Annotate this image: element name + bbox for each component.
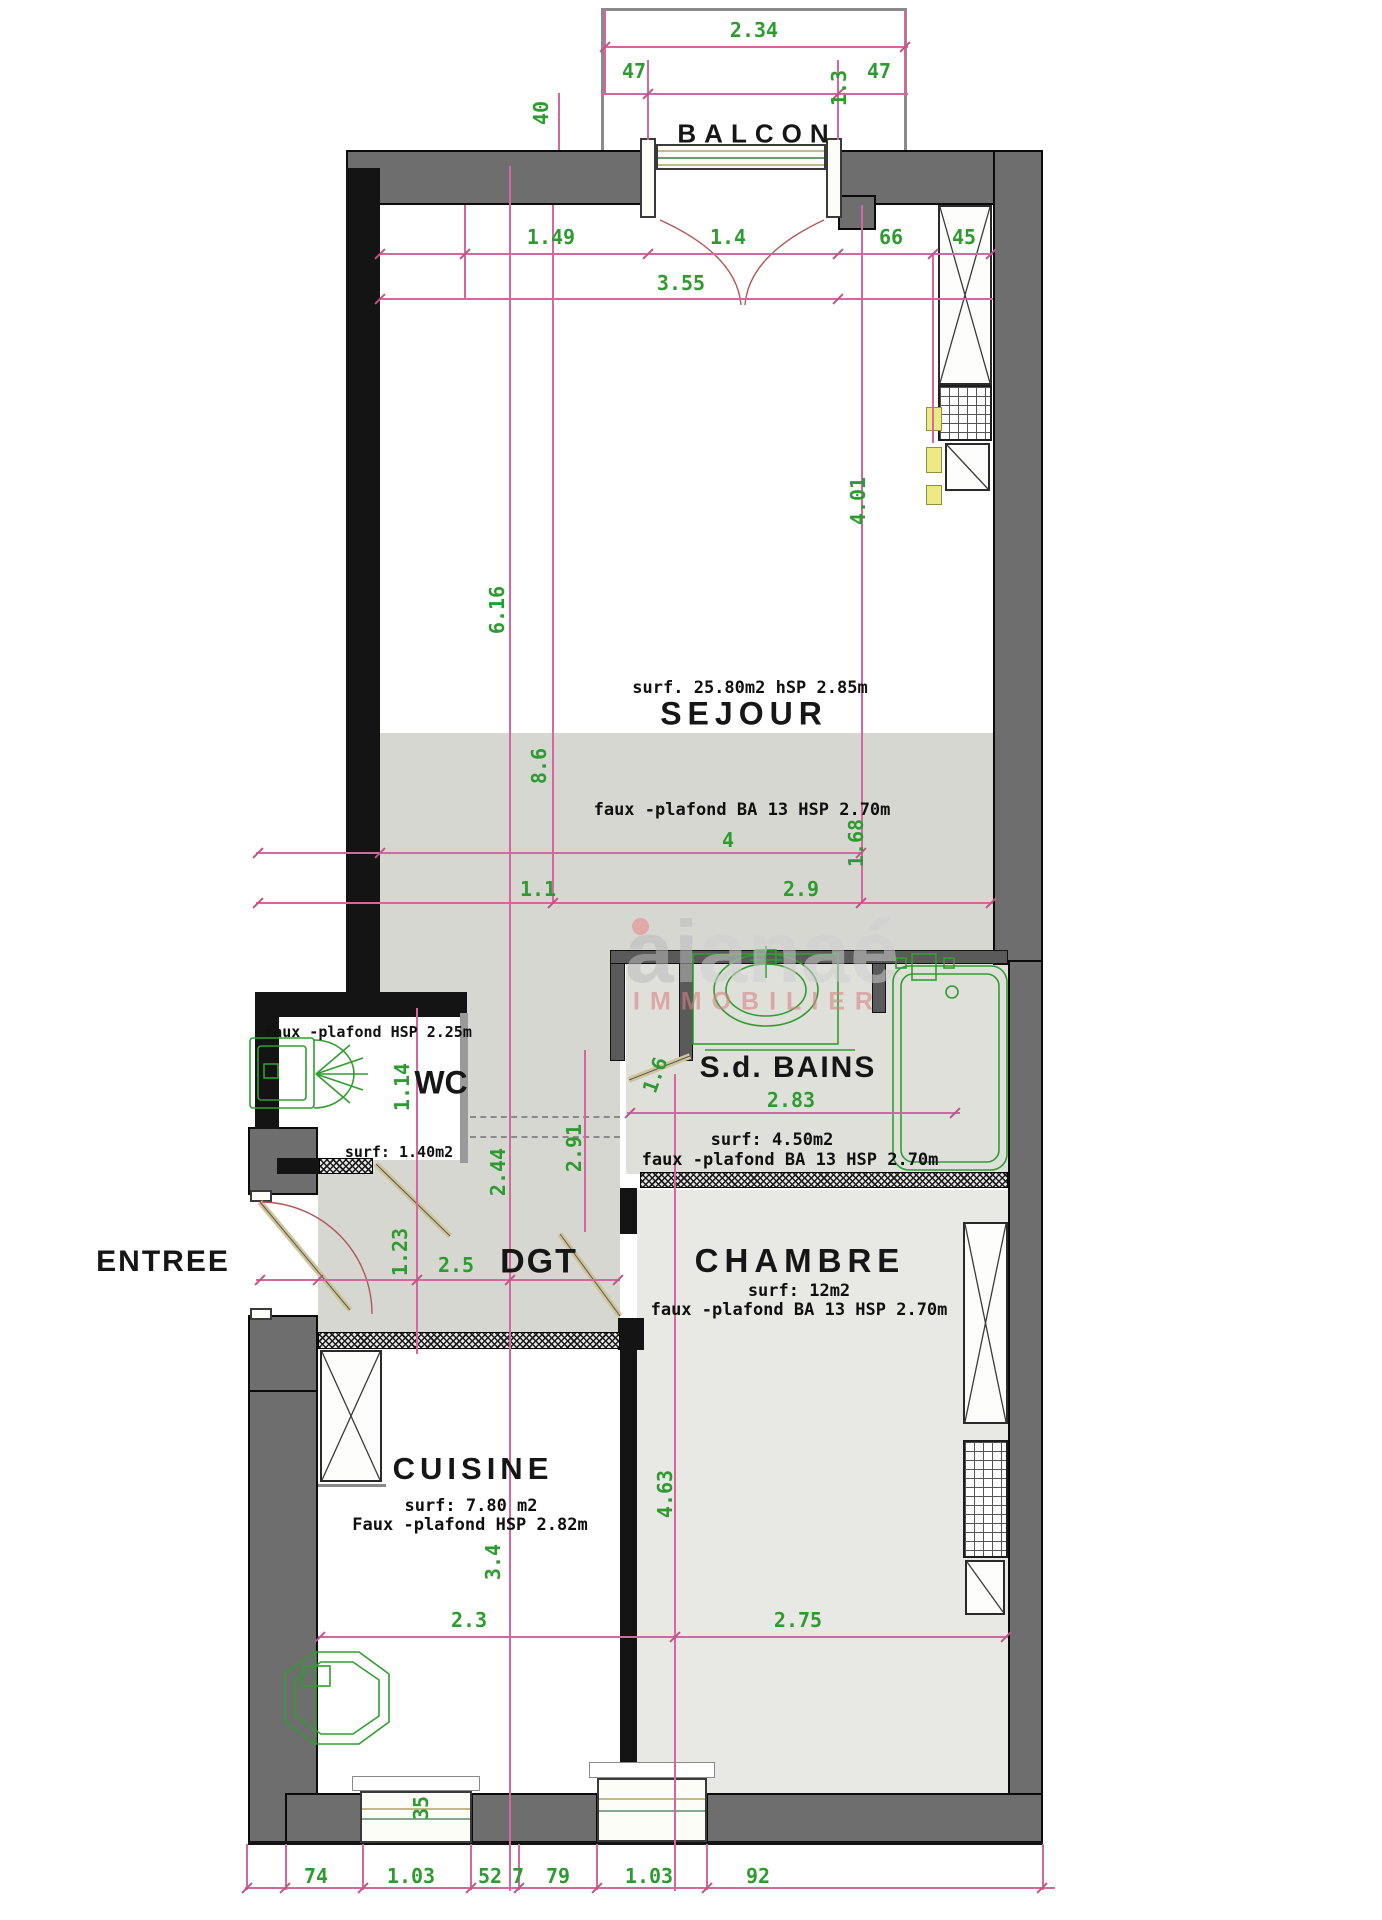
dim-line bbox=[552, 205, 554, 904]
dim-line bbox=[932, 253, 934, 443]
dim-line bbox=[380, 298, 993, 300]
dim-text: 47 bbox=[622, 59, 646, 83]
dim-text: 1.23 bbox=[388, 1228, 412, 1276]
room-label-chambre: CHAMBRE bbox=[695, 1242, 906, 1280]
dim-line bbox=[558, 93, 560, 150]
dim-text: 52 bbox=[478, 1864, 502, 1888]
dim-text: 1.03 bbox=[625, 1864, 673, 1888]
dim-text: 1.14 bbox=[390, 1063, 414, 1111]
dim-text: 92 bbox=[746, 1864, 770, 1888]
dim-line bbox=[706, 1844, 708, 1890]
toilet-icon bbox=[250, 1038, 368, 1108]
dim-text: 2.44 bbox=[486, 1148, 510, 1196]
wc-surface: surf: 1.40m2 bbox=[345, 1143, 453, 1161]
dim-text: 66 bbox=[879, 225, 903, 249]
dim-line bbox=[604, 10, 606, 94]
dim-text: 1.68 bbox=[844, 819, 868, 867]
dim-line bbox=[509, 166, 511, 1891]
dim-text: 45 bbox=[952, 225, 976, 249]
room-label-entree: ENTREE bbox=[96, 1245, 230, 1279]
sdb-surface: surf: 4.50m2 bbox=[711, 1130, 834, 1150]
dim-line bbox=[256, 852, 862, 854]
dim-text: 1.49 bbox=[527, 225, 575, 249]
dim-text: 79 bbox=[546, 1864, 570, 1888]
dim-text: 40 bbox=[529, 101, 553, 125]
bathtub-icon bbox=[893, 954, 1007, 1170]
chambre-ceiling: faux -plafond BA 13 HSP 2.70m bbox=[651, 1300, 948, 1320]
wc-ceiling: faux -plafond HSP 2.25m bbox=[264, 1023, 472, 1041]
dim-text: 2.3 bbox=[451, 1608, 487, 1632]
door-leaves bbox=[260, 1056, 690, 1316]
dim-text: 7 bbox=[512, 1864, 524, 1888]
dim-text: 6.16 bbox=[485, 586, 509, 634]
cuisine-surface: surf: 7.80 m2 bbox=[404, 1496, 537, 1516]
watermark-brand-left: ai bbox=[625, 902, 698, 1001]
hidden-line bbox=[470, 1116, 620, 1118]
floor-plan: aianaé IMMOBILIER bbox=[0, 0, 1382, 1920]
dim-text: 1.4 bbox=[710, 225, 746, 249]
dim-text: 2.83 bbox=[767, 1088, 815, 1112]
dim-text: 2.5 bbox=[438, 1253, 474, 1277]
chambre-surface: surf: 12m2 bbox=[748, 1281, 850, 1301]
dim-text: 2.91 bbox=[562, 1124, 586, 1172]
dim-text: 4 bbox=[722, 828, 734, 852]
room-label-wc: WC bbox=[414, 1065, 467, 1102]
watermark-sub: IMMOBILIER bbox=[633, 988, 883, 1017]
dim-line bbox=[470, 1844, 472, 1890]
dim-line bbox=[362, 1844, 364, 1890]
room-label-balcon: BALCON bbox=[677, 119, 836, 150]
dim-line bbox=[601, 46, 908, 48]
kitchen-sink-icon bbox=[285, 1652, 389, 1744]
hidden-line bbox=[470, 1136, 620, 1138]
dim-text: 3.55 bbox=[657, 271, 705, 295]
dim-line bbox=[904, 10, 906, 94]
dim-text: 2.75 bbox=[774, 1608, 822, 1632]
dim-line bbox=[246, 1844, 248, 1890]
dim-text: 2.9 bbox=[783, 877, 819, 901]
cuisine-ceiling: Faux -plafond HSP 2.82m bbox=[352, 1515, 587, 1535]
dim-line bbox=[596, 1844, 598, 1890]
dim-text: 47 bbox=[867, 59, 891, 83]
dim-text: 1.1 bbox=[520, 877, 556, 901]
dim-line bbox=[647, 60, 649, 140]
dim-line bbox=[416, 1008, 418, 1354]
watermark-brand-right: anaé bbox=[698, 902, 899, 1001]
dim-line bbox=[380, 253, 993, 255]
dim-line bbox=[627, 1112, 960, 1114]
sejour-ceiling: faux -plafond BA 13 HSP 2.70m bbox=[594, 800, 891, 820]
dim-text: 74 bbox=[304, 1864, 328, 1888]
dim-text: 1.3 bbox=[827, 70, 851, 106]
room-label-sdb: S.d. BAINS bbox=[700, 1051, 877, 1085]
dim-line bbox=[318, 1636, 1008, 1638]
dim-line bbox=[256, 902, 993, 904]
room-label-sejour: SEJOUR bbox=[660, 696, 828, 733]
dim-text: 4.01 bbox=[846, 477, 870, 525]
dim-text: 3.4 bbox=[481, 1544, 505, 1580]
sdb-ceiling: faux -plafond BA 13 HSP 2.70m bbox=[642, 1150, 939, 1170]
dim-text: 2.34 bbox=[730, 18, 778, 42]
room-label-dgt: DGT bbox=[500, 1243, 578, 1282]
dim-text: 8.6 bbox=[527, 748, 551, 784]
room-label-cuisine: CUISINE bbox=[393, 1451, 554, 1487]
dim-text: 4.63 bbox=[653, 1470, 677, 1518]
dim-text: 35 bbox=[409, 1796, 433, 1820]
dim-text: 1.03 bbox=[387, 1864, 435, 1888]
